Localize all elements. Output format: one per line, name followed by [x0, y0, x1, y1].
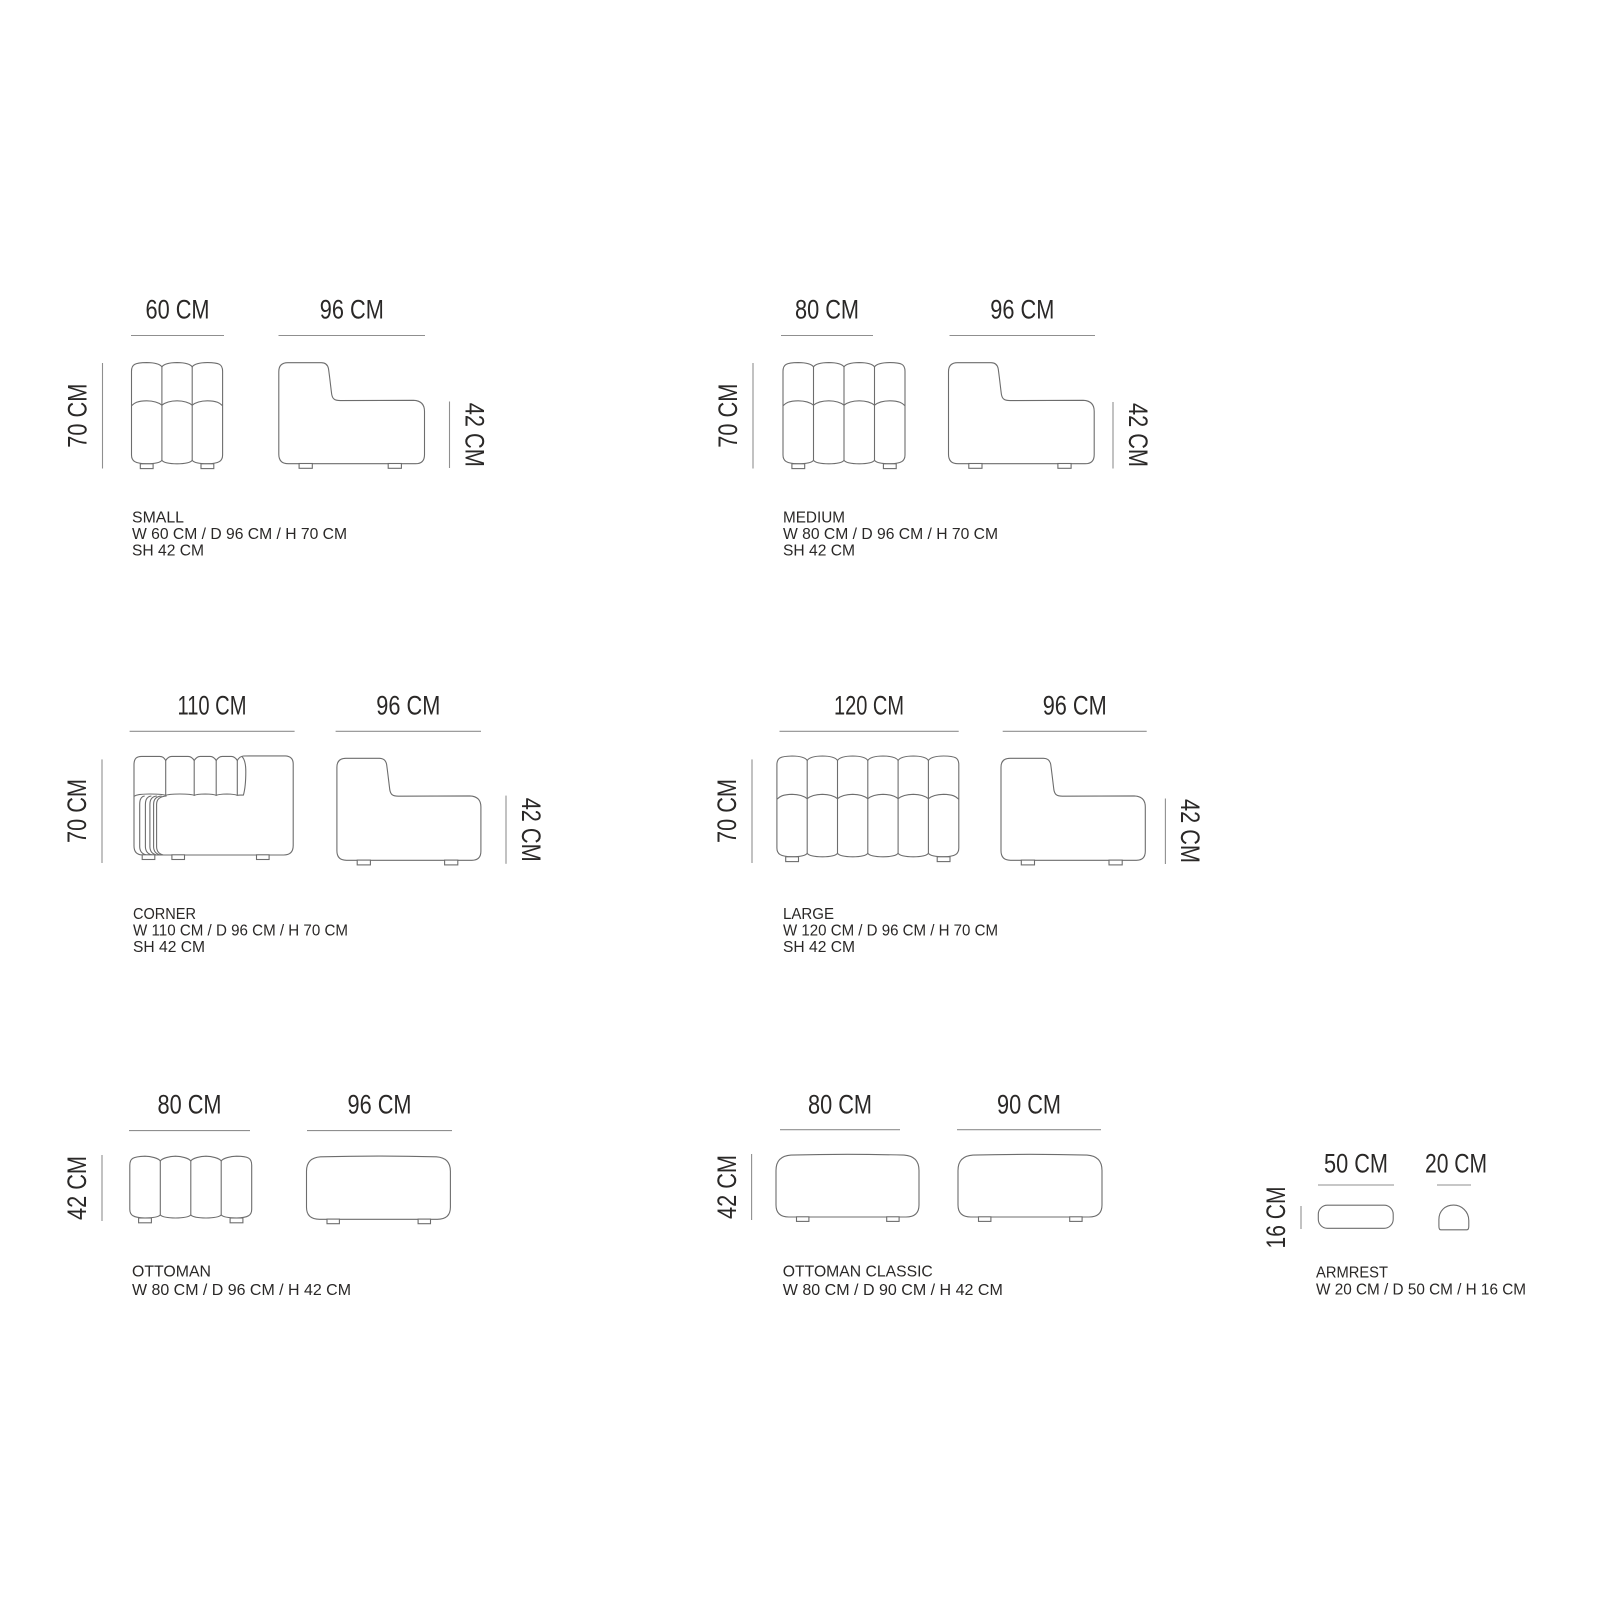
svg-text:90 CM: 90 CM	[997, 1090, 1061, 1120]
svg-text:60 CM: 60 CM	[146, 295, 210, 325]
svg-text:42 CM: 42 CM	[1175, 799, 1205, 863]
svg-text:50 CM: 50 CM	[1324, 1148, 1388, 1178]
svg-text:42 CM: 42 CM	[516, 798, 546, 862]
svg-text:SH 42 CM: SH 42 CM	[783, 939, 855, 956]
svg-text:SH 42 CM: SH 42 CM	[132, 543, 204, 560]
svg-text:OTTOMAN CLASSIC: OTTOMAN CLASSIC	[783, 1264, 933, 1281]
svg-text:W 80 CM / D 96 CM / H 42 CM: W 80 CM / D 96 CM / H 42 CM	[132, 1282, 351, 1299]
svg-text:120 CM: 120 CM	[834, 691, 904, 721]
svg-text:LARGE: LARGE	[783, 906, 834, 923]
svg-text:80 CM: 80 CM	[795, 295, 859, 325]
svg-text:SH 42 CM: SH 42 CM	[783, 543, 855, 560]
svg-text:W 80 CM / D 96 CM / H 70 CM: W 80 CM / D 96 CM / H 70 CM	[783, 526, 998, 543]
svg-text:96 CM: 96 CM	[1043, 691, 1107, 721]
svg-text:W 80 CM / D 90 CM / H 42 CM: W 80 CM / D 90 CM / H 42 CM	[783, 1282, 1003, 1299]
svg-text:W 110 CM / D 96 CM / H 70 CM: W 110 CM / D 96 CM / H 70 CM	[133, 923, 348, 940]
svg-text:MEDIUM: MEDIUM	[783, 510, 845, 527]
svg-text:110 CM: 110 CM	[178, 691, 247, 721]
svg-text:70 CM: 70 CM	[713, 384, 743, 448]
svg-text:80 CM: 80 CM	[158, 1090, 222, 1120]
svg-text:70 CM: 70 CM	[63, 384, 93, 448]
svg-text:16 CM: 16 CM	[1261, 1187, 1291, 1249]
svg-text:42 CM: 42 CM	[1123, 403, 1153, 467]
svg-text:W 20 CM / D 50 CM / H 16 CM: W 20 CM / D 50 CM / H 16 CM	[1316, 1282, 1526, 1299]
svg-text:70 CM: 70 CM	[712, 779, 742, 843]
svg-text:80 CM: 80 CM	[808, 1090, 872, 1120]
svg-text:OTTOMAN: OTTOMAN	[132, 1264, 211, 1281]
svg-text:20 CM: 20 CM	[1425, 1148, 1487, 1178]
svg-text:70 CM: 70 CM	[62, 779, 92, 843]
svg-text:W 120 CM / D 96 CM / H 70 CM: W 120 CM / D 96 CM / H 70 CM	[783, 923, 998, 940]
svg-text:42 CM: 42 CM	[459, 403, 489, 467]
svg-text:ARMREST: ARMREST	[1316, 1265, 1388, 1282]
svg-text:96 CM: 96 CM	[320, 295, 384, 325]
svg-text:SMALL: SMALL	[132, 510, 184, 527]
svg-text:42 CM: 42 CM	[712, 1155, 742, 1219]
svg-text:SH 42 CM: SH 42 CM	[133, 939, 205, 956]
svg-text:W 60 CM / D 96 CM / H 70 CM: W 60 CM / D 96 CM / H 70 CM	[132, 526, 347, 543]
svg-text:96 CM: 96 CM	[376, 691, 440, 721]
svg-text:96 CM: 96 CM	[348, 1090, 412, 1120]
svg-text:CORNER: CORNER	[133, 906, 196, 923]
svg-text:42 CM: 42 CM	[62, 1156, 92, 1220]
svg-text:96 CM: 96 CM	[990, 295, 1054, 325]
